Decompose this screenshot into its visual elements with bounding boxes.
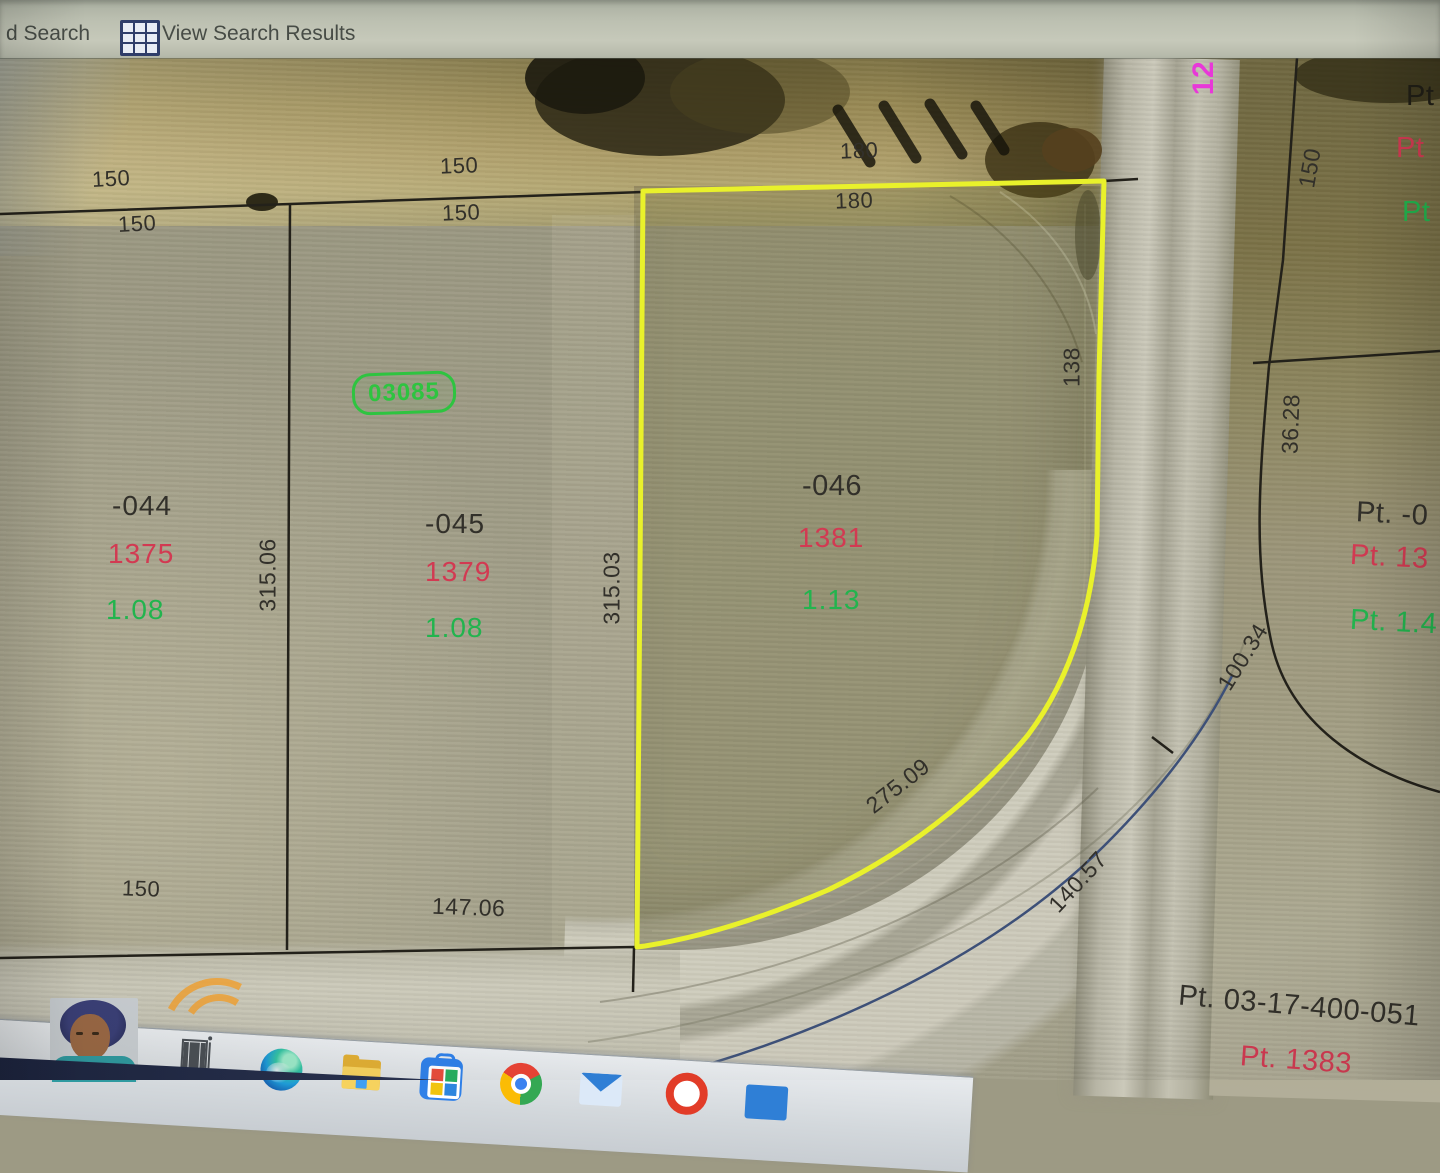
parcel-id: 1375 bbox=[108, 540, 174, 568]
neighbor-parcel-id: Pt. 13 bbox=[1349, 541, 1429, 574]
neighbor-parcel-acres: Pt bbox=[1402, 198, 1430, 227]
parcel-number: -044 bbox=[112, 492, 172, 520]
dim-label: 140.57 bbox=[1045, 847, 1112, 916]
neighbor-parcel-label: Pt bbox=[1406, 82, 1434, 111]
dim-label: 150 bbox=[117, 212, 156, 236]
windows-taskbar[interactable] bbox=[0, 1018, 973, 1173]
parcel-acres: 1.13 bbox=[802, 586, 861, 614]
parcel-id: 1381 bbox=[798, 524, 864, 552]
microsoft-store-icon[interactable] bbox=[419, 1057, 463, 1101]
advanced-search-button[interactable]: d Search bbox=[6, 22, 90, 46]
dim-label: 100.34 bbox=[1214, 620, 1272, 694]
parcel-number: -046 bbox=[802, 472, 862, 501]
dim-label: 150 bbox=[122, 877, 161, 900]
results-grid-icon[interactable] bbox=[120, 20, 160, 56]
dim-label: 180 bbox=[835, 189, 874, 212]
page-logo-partial bbox=[158, 972, 270, 1022]
view-search-results-button[interactable]: View Search Results bbox=[162, 22, 355, 46]
file-explorer-icon[interactable] bbox=[339, 1052, 383, 1096]
neighbor-parcel-id: Pt bbox=[1396, 134, 1424, 163]
browser-icon-partial[interactable] bbox=[665, 1072, 709, 1116]
neighbor-parcel-id: Pt. 1383 bbox=[1239, 1042, 1353, 1079]
dim-label: 150 bbox=[442, 201, 481, 224]
mail-icon[interactable] bbox=[579, 1072, 623, 1106]
parcel-number: -045 bbox=[425, 510, 485, 538]
chrome-icon[interactable] bbox=[499, 1062, 543, 1106]
road-tag: 12 bbox=[1189, 61, 1219, 95]
app-toolbar: d Search View Search Results bbox=[0, 0, 1440, 58]
dim-label: 150 bbox=[1295, 146, 1325, 189]
parcel-id: 1379 bbox=[425, 558, 491, 586]
neighbor-parcel-label: Pt. 03-17-400-051 bbox=[1177, 981, 1421, 1031]
parcel-acres: 1.08 bbox=[425, 614, 484, 642]
dim-label: 180 bbox=[840, 139, 879, 162]
dim-label: 36.28 bbox=[1278, 394, 1303, 455]
edge-icon[interactable] bbox=[259, 1047, 303, 1091]
field-light-area bbox=[0, 215, 640, 960]
neighbor-parcel-label: Pt. -0 bbox=[1355, 498, 1429, 531]
parcel-acres: 1.08 bbox=[106, 596, 165, 624]
window-icon-partial[interactable] bbox=[744, 1084, 788, 1120]
dim-label: 150 bbox=[91, 167, 130, 191]
selected-parcel-046-region[interactable] bbox=[634, 186, 1104, 950]
screen-photo: { "toolbar": { "partial_search_label": "… bbox=[0, 0, 1440, 1080]
dim-label: 315.03 bbox=[601, 551, 624, 624]
dim-label: 138 bbox=[1061, 347, 1084, 387]
dim-label: 315.06 bbox=[257, 538, 280, 611]
photo-edge-shade bbox=[0, 56, 130, 256]
dim-label: 147.06 bbox=[432, 895, 506, 921]
region-tag-badge: 03085 bbox=[351, 370, 456, 416]
neighbor-parcel-acres: Pt. 1.4 bbox=[1349, 606, 1438, 640]
dim-label: 150 bbox=[440, 154, 479, 177]
